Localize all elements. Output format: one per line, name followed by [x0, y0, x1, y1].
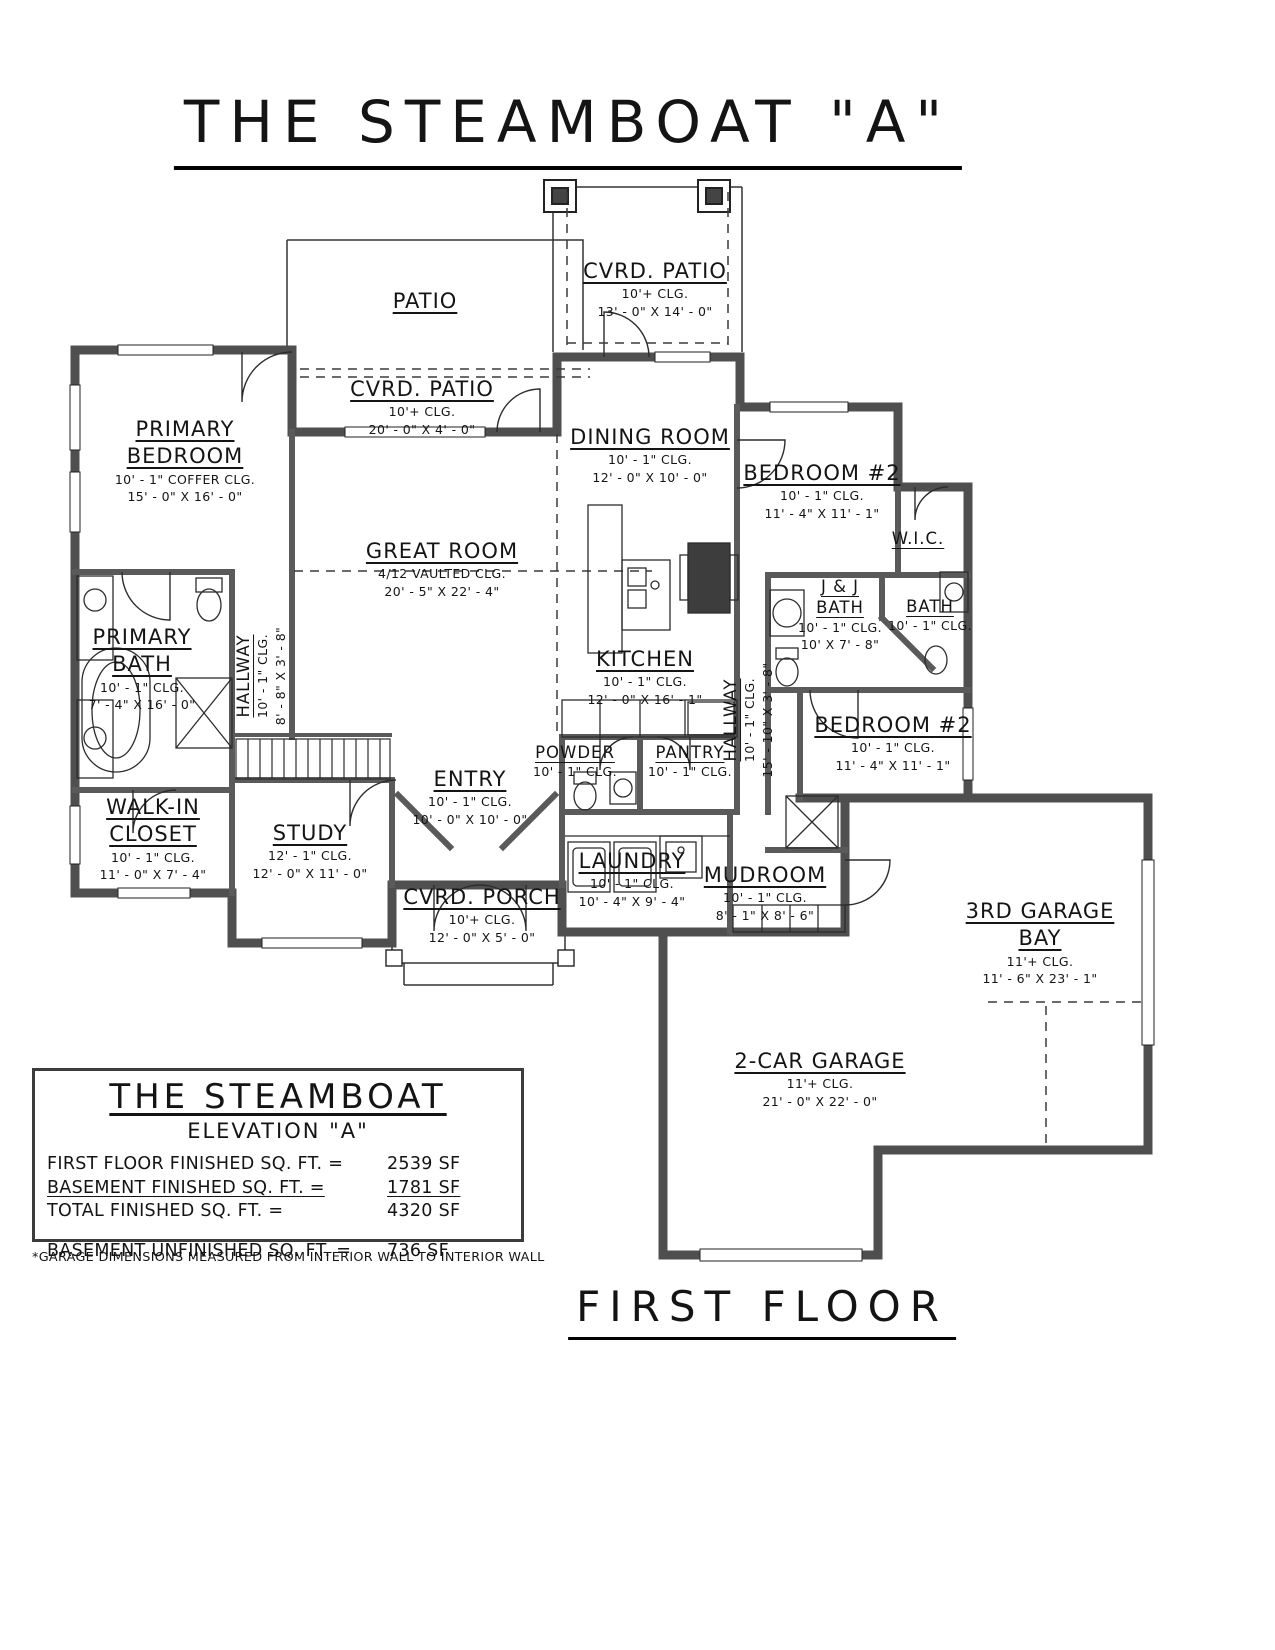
row-value: 1781 SF — [387, 1177, 460, 1201]
room-dims: 10' - 0" X 10' - 0" — [412, 812, 527, 828]
room-name: LAUNDRY — [579, 848, 686, 875]
room-name: HALLWAY — [233, 627, 254, 725]
room-dims: 11' - 0" X 7' - 4" — [100, 867, 207, 883]
room-dims: 15' - 10" X 3' - 8" — [760, 662, 776, 777]
room-name: CVRD. PORCH — [403, 884, 560, 911]
room-name: STUDY — [252, 820, 367, 847]
room-ceiling: 10' - 1" CLG. — [587, 674, 702, 690]
room-label-entry: ENTRY 10' - 1" CLG. 10' - 0" X 10' - 0" — [412, 766, 527, 828]
room-name: BATH — [888, 596, 972, 617]
room-label-cvrd-patio-front: CVRD. PATIO 10'+ CLG. 13' - 0" X 14' - 0… — [583, 258, 727, 320]
plan-elevation: ELEVATION "A" — [47, 1119, 509, 1143]
plan-name: THE STEAMBOAT — [47, 1077, 509, 1117]
plan-info-box: THE STEAMBOAT ELEVATION "A" FIRST FLOOR … — [32, 1068, 524, 1242]
toilet-icon — [196, 578, 222, 592]
room-label-great-room: GREAT ROOM 4/12 VAULTED CLG. 20' - 5" X … — [366, 538, 518, 600]
room-ceiling: 10' - 1" CLG. — [412, 794, 527, 810]
room-label-bath-right: BATH 10' - 1" CLG. — [888, 596, 972, 635]
room-dims: 13' - 0" X 14' - 0" — [583, 304, 727, 320]
room-name: PRIMARY BATH — [89, 624, 196, 679]
room-ceiling: 10' - 1" CLG. — [648, 764, 732, 780]
room-name: DINING ROOM — [570, 424, 730, 451]
floor-title: FIRST FLOOR — [568, 1282, 956, 1340]
room-label-cvrd-patio-rear: CVRD. PATIO 10'+ CLG. 20' - 0" X 4' - 0" — [350, 376, 494, 438]
room-label-bedroom2-lower: BEDROOM #2 10' - 1" CLG. 11' - 4" X 11' … — [814, 712, 971, 774]
room-name: WALK-IN CLOSET — [100, 794, 207, 849]
room-dims: 11' - 4" X 11' - 1" — [814, 758, 971, 774]
room-dims: 12' - 0" X 11' - 0" — [252, 866, 367, 882]
room-label-cvrd-porch: CVRD. PORCH 10'+ CLG. 12' - 0" X 5' - 0" — [403, 884, 560, 946]
room-label-mudroom: MUDROOM 10' - 1" CLG. 8' - 1" X 8' - 6" — [704, 862, 826, 924]
row-label: FIRST FLOOR FINISHED SQ. FT. = — [47, 1153, 387, 1177]
room-ceiling: 10' - 1" CLG. — [255, 627, 271, 725]
room-ceiling: 10' - 1" CLG. — [89, 680, 196, 696]
row-value: 4320 SF — [387, 1200, 460, 1224]
room-dims: 20' - 0" X 4' - 0" — [350, 422, 494, 438]
room-ceiling: 10' - 1" CLG. — [743, 488, 900, 504]
stairs-icon — [236, 739, 390, 779]
room-name: BEDROOM #2 — [743, 460, 900, 487]
room-ceiling: 10'+ CLG. — [403, 912, 560, 928]
room-dims: 10' X 7' - 8" — [798, 637, 882, 653]
kitchen-island-icon — [588, 505, 622, 653]
room-name: ENTRY — [412, 766, 527, 793]
row-label: TOTAL FINISHED SQ. FT. = — [47, 1200, 387, 1224]
room-dims: 20' - 5" X 22' - 4" — [366, 584, 518, 600]
square-footage-table: FIRST FLOOR FINISHED SQ. FT. = 2539 SF B… — [47, 1153, 509, 1264]
room-ceiling: 10' - 1" CLG. — [533, 764, 617, 780]
room-ceiling: 10' - 1" CLG. — [742, 662, 758, 777]
room-ceiling: 10' - 1" COFFER CLG. — [115, 472, 255, 488]
room-name: W.I.C. — [892, 528, 945, 549]
room-label-primary-bath: PRIMARY BATH 10' - 1" CLG. 7' - 4" X 16'… — [89, 624, 196, 713]
room-name: MUDROOM — [704, 862, 826, 889]
room-ceiling: 10' - 1" CLG. — [814, 740, 971, 756]
room-name: PANTRY — [648, 742, 732, 763]
room-label-third-garage-bay: 3RD GARAGE BAY 11'+ CLG. 11' - 6" X 23' … — [966, 898, 1115, 987]
room-label-two-car-garage: 2-CAR GARAGE 11'+ CLG. 21' - 0" X 22' - … — [734, 1048, 905, 1110]
room-ceiling: 10'+ CLG. — [350, 404, 494, 420]
room-label-jj-bath: J & J BATH 10' - 1" CLG. 10' X 7' - 8" — [798, 576, 882, 653]
room-dims: 12' - 0" X 16' - 1" — [587, 692, 702, 708]
room-label-study: STUDY 12' - 1" CLG. 12' - 0" X 11' - 0" — [252, 820, 367, 882]
room-label-walk-in-closet: WALK-IN CLOSET 10' - 1" CLG. 11' - 0" X … — [100, 794, 207, 883]
row-label: BASEMENT FINISHED SQ. FT. = — [47, 1177, 387, 1201]
room-dims: 12' - 0" X 10' - 0" — [570, 470, 730, 486]
room-label-kitchen: KITCHEN 10' - 1" CLG. 12' - 0" X 16' - 1… — [587, 646, 702, 708]
room-dims: 15' - 0" X 16' - 0" — [115, 489, 255, 505]
room-dims: 21' - 0" X 22' - 0" — [734, 1094, 905, 1110]
table-row: BASEMENT FINISHED SQ. FT. = 1781 SF — [47, 1177, 509, 1201]
room-ceiling: 10' - 1" CLG. — [570, 452, 730, 468]
room-ceiling: 4/12 VAULTED CLG. — [366, 566, 518, 582]
room-name: BEDROOM #2 — [814, 712, 971, 739]
bath-toilet-icon — [925, 646, 947, 674]
room-ceiling: 10' - 1" CLG. — [704, 890, 826, 906]
table-row: FIRST FLOOR FINISHED SQ. FT. = 2539 SF — [47, 1153, 509, 1177]
room-dims: 8' - 1" X 8' - 6" — [704, 908, 826, 924]
room-ceiling: 10' - 1" CLG. — [579, 876, 686, 892]
room-ceiling: 12' - 1" CLG. — [252, 848, 367, 864]
room-label-laundry: LAUNDRY 10' - 1" CLG. 10' - 4" X 9' - 4" — [579, 848, 686, 910]
room-name: GREAT ROOM — [366, 538, 518, 565]
room-dims: 7' - 4" X 16' - 0" — [89, 697, 196, 713]
room-dims: 8' - 8" X 3' - 8" — [273, 627, 289, 725]
room-ceiling: 10'+ CLG. — [583, 286, 727, 302]
floor-plan-page: THE STEAMBOAT "A" — [0, 0, 1275, 1650]
room-name: J & J BATH — [798, 576, 882, 619]
room-dims: 11' - 6" X 23' - 1" — [966, 971, 1115, 987]
room-label-patio: PATIO — [393, 288, 458, 315]
room-ceiling: 11'+ CLG. — [966, 954, 1115, 970]
room-label-hallway-left: HALLWAY 10' - 1" CLG. 8' - 8" X 3' - 8" — [233, 627, 289, 725]
room-dims: 10' - 4" X 9' - 4" — [579, 894, 686, 910]
row-value: 2539 SF — [387, 1153, 460, 1177]
room-label-primary-bedroom: PRIMARY BEDROOM 10' - 1" COFFER CLG. 15'… — [115, 416, 255, 505]
room-name: KITCHEN — [587, 646, 702, 673]
room-ceiling: 11'+ CLG. — [734, 1076, 905, 1092]
room-label-wic: W.I.C. — [892, 528, 945, 549]
room-ceiling: 10' - 1" CLG. — [888, 618, 972, 634]
room-name: CVRD. PATIO — [350, 376, 494, 403]
room-label-powder: POWDER 10' - 1" CLG. — [533, 742, 617, 781]
room-name: 2-CAR GARAGE — [734, 1048, 905, 1075]
garage-dimensions-note: *GARAGE DIMENSIONS MEASURED FROM INTERIO… — [32, 1250, 545, 1265]
table-row: TOTAL FINISHED SQ. FT. = 4320 SF — [47, 1200, 509, 1224]
room-name: PRIMARY BEDROOM — [115, 416, 255, 471]
room-label-dining-room: DINING ROOM 10' - 1" CLG. 12' - 0" X 10'… — [570, 424, 730, 486]
fireplace-icon — [688, 543, 730, 613]
room-ceiling: 10' - 1" CLG. — [798, 620, 882, 636]
room-ceiling: 10' - 1" CLG. — [100, 850, 207, 866]
room-dims: 12' - 0" X 5' - 0" — [403, 930, 560, 946]
room-dims: 11' - 4" X 11' - 1" — [743, 506, 900, 522]
room-name: CVRD. PATIO — [583, 258, 727, 285]
room-name: PATIO — [393, 288, 458, 315]
room-name: 3RD GARAGE BAY — [966, 898, 1115, 953]
room-label-bedroom2-upper: BEDROOM #2 10' - 1" CLG. 11' - 4" X 11' … — [743, 460, 900, 522]
room-name: POWDER — [533, 742, 617, 763]
room-label-pantry: PANTRY 10' - 1" CLG. — [648, 742, 732, 781]
